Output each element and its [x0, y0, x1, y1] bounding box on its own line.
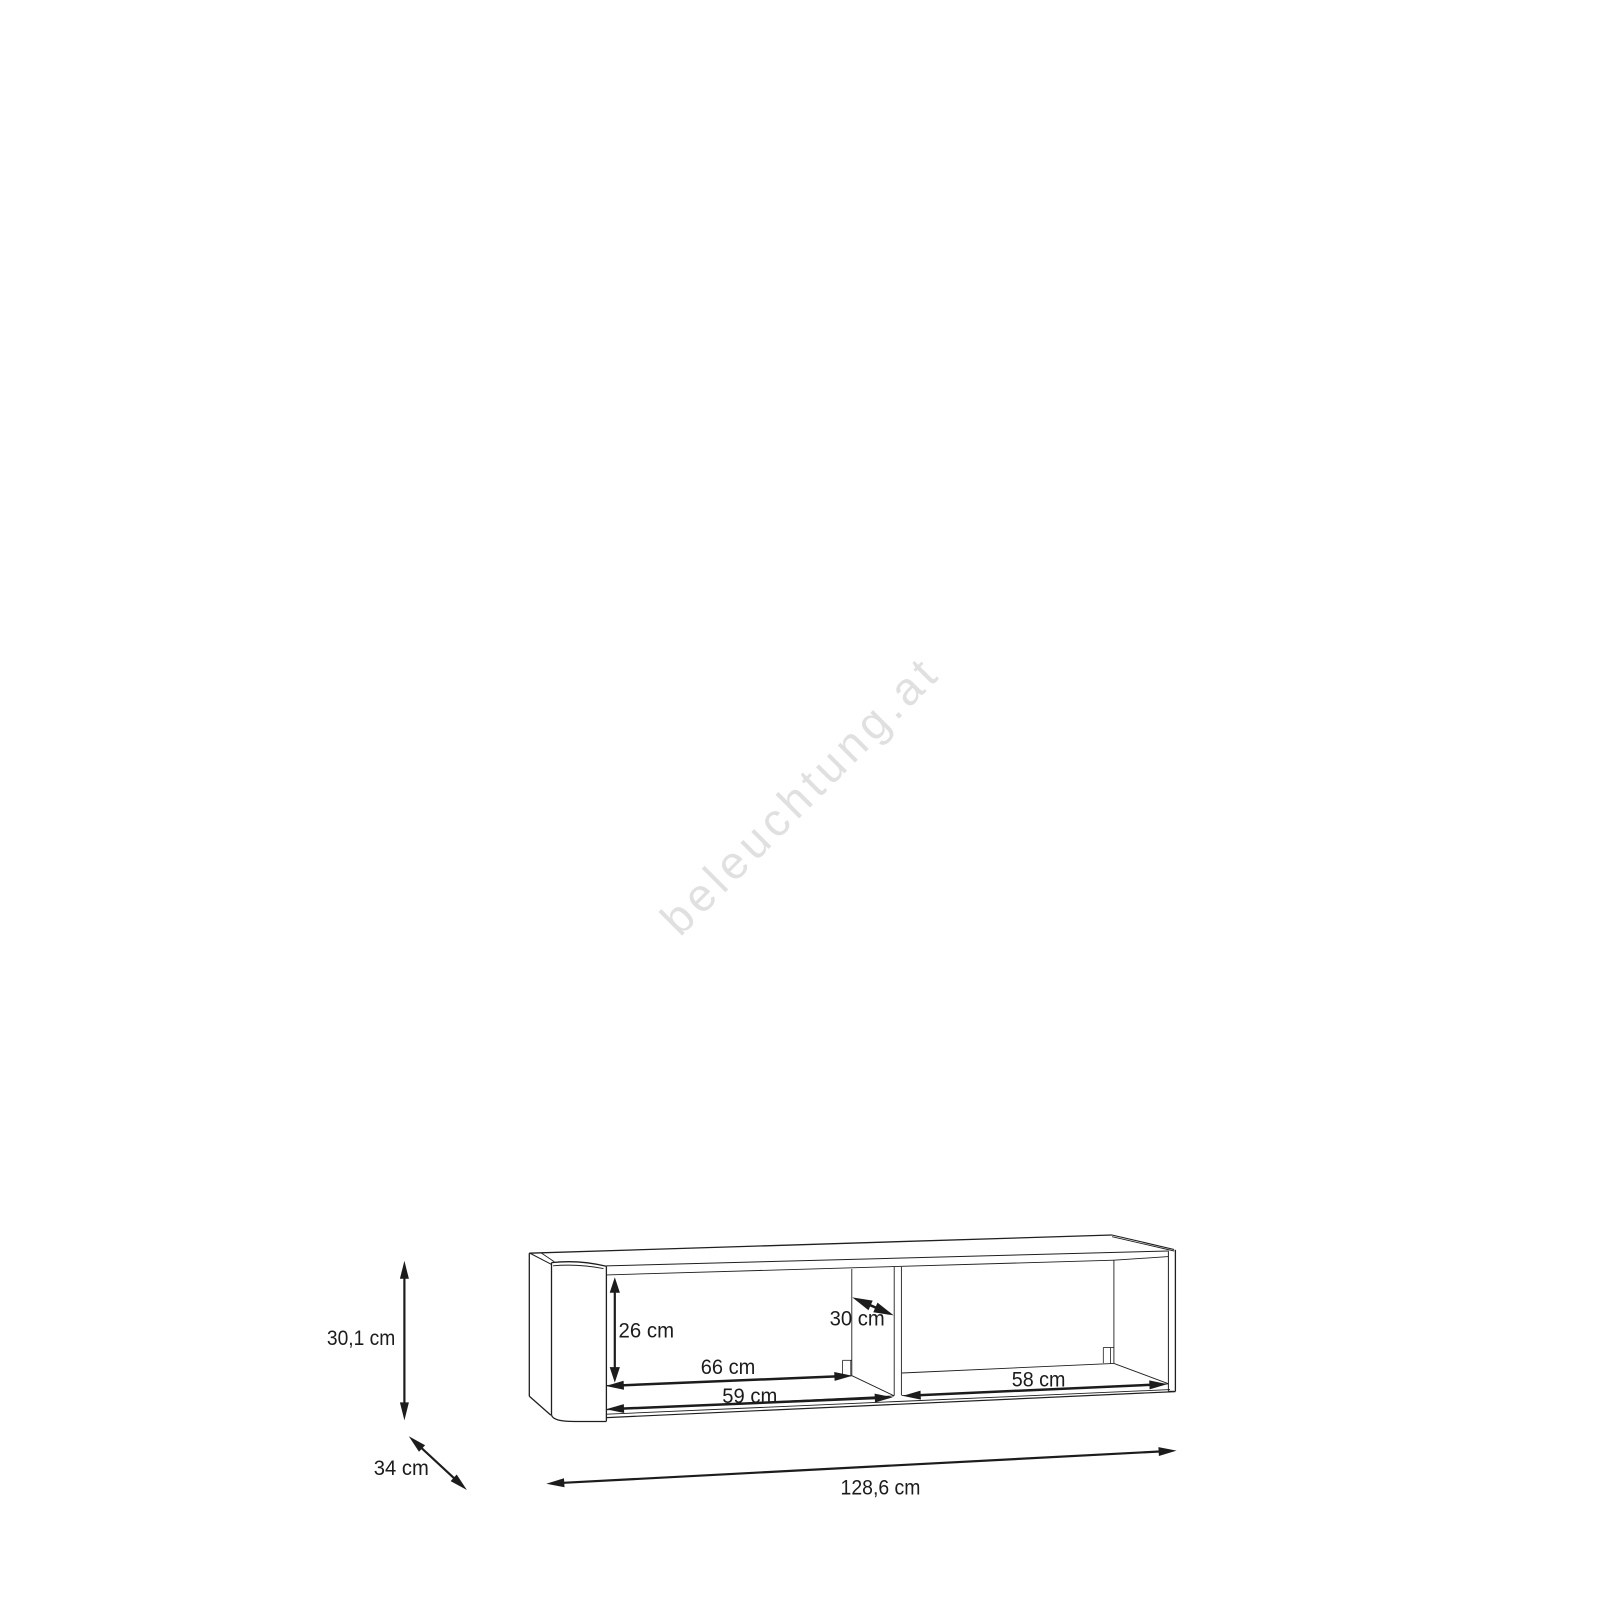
svg-text:128,6 cm: 128,6 cm	[841, 1477, 921, 1500]
svg-text:30,1 cm: 30,1 cm	[327, 1327, 395, 1350]
svg-text:34 cm: 34 cm	[374, 1457, 429, 1480]
svg-text:beleuchtung.at: beleuchtung.at	[650, 645, 950, 945]
svg-text:66 cm: 66 cm	[701, 1356, 756, 1379]
svg-text:59 cm: 59 cm	[722, 1385, 777, 1408]
svg-text:26 cm: 26 cm	[619, 1319, 675, 1342]
svg-text:58 cm: 58 cm	[1012, 1369, 1066, 1392]
svg-text:30 cm: 30 cm	[830, 1307, 885, 1330]
